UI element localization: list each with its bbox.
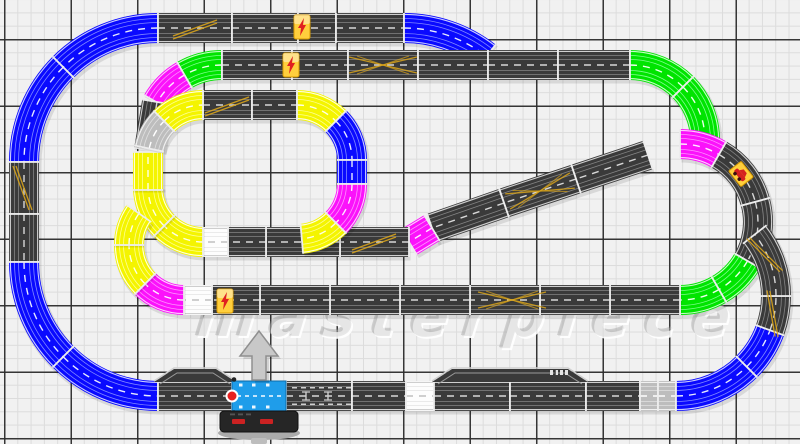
track-piece-50[interactable] xyxy=(400,285,472,315)
pit-lane-hump[interactable] xyxy=(154,368,236,384)
track-piece-49[interactable] xyxy=(470,285,542,315)
track-piece-60[interactable] xyxy=(352,381,408,411)
power-tap-icon xyxy=(294,15,310,39)
start-marker-dot xyxy=(227,391,238,402)
track-piece-34[interactable] xyxy=(203,227,230,257)
track-piece-4[interactable] xyxy=(9,262,74,367)
track-piece-52[interactable] xyxy=(260,285,332,315)
track-piece-44[interactable] xyxy=(133,152,163,193)
power-tap-icon xyxy=(283,53,299,77)
controller-button[interactable] xyxy=(260,419,273,424)
track-piece-1[interactable] xyxy=(9,57,74,165)
start-direction-arrow[interactable] xyxy=(240,331,278,380)
track-piece-17[interactable] xyxy=(418,50,490,80)
pit-lane-hump[interactable] xyxy=(432,368,588,384)
track-piece-36[interactable] xyxy=(252,90,299,120)
track-piece-18[interactable] xyxy=(488,50,560,80)
track-layer xyxy=(0,0,800,444)
track-piece-5[interactable] xyxy=(53,346,160,411)
track-piece-66[interactable] xyxy=(658,381,678,411)
powerbase-controller[interactable] xyxy=(218,411,300,444)
track-piece-15[interactable] xyxy=(292,50,350,80)
track-piece-0[interactable] xyxy=(53,13,160,78)
track-piece-58[interactable] xyxy=(158,381,234,411)
track-piece-65[interactable] xyxy=(640,381,660,411)
track-piece-27[interactable] xyxy=(571,141,652,193)
track-piece-54[interactable] xyxy=(184,285,214,315)
design-canvas[interactable]: masterpiece xyxy=(0,0,800,444)
track-piece-9[interactable] xyxy=(336,13,406,43)
track-piece-51[interactable] xyxy=(330,285,402,315)
track-piece-39[interactable] xyxy=(337,160,367,187)
track-piece-47[interactable] xyxy=(610,285,682,315)
track-piece-64[interactable] xyxy=(586,381,642,411)
track-piece-7[interactable] xyxy=(232,13,300,43)
controller-button[interactable] xyxy=(232,419,245,424)
track-piece-63[interactable] xyxy=(510,381,588,411)
track-piece-3[interactable] xyxy=(9,214,39,265)
track-piece-19[interactable] xyxy=(558,50,632,80)
power-tap-icon xyxy=(217,289,233,313)
track-piece-29[interactable] xyxy=(427,189,509,242)
track-piece-33[interactable] xyxy=(228,227,268,257)
track-piece-48[interactable] xyxy=(540,285,612,315)
track-piece-61[interactable] xyxy=(406,381,436,411)
track-piece-59[interactable] xyxy=(286,381,354,411)
track-piece-62[interactable] xyxy=(434,381,512,411)
